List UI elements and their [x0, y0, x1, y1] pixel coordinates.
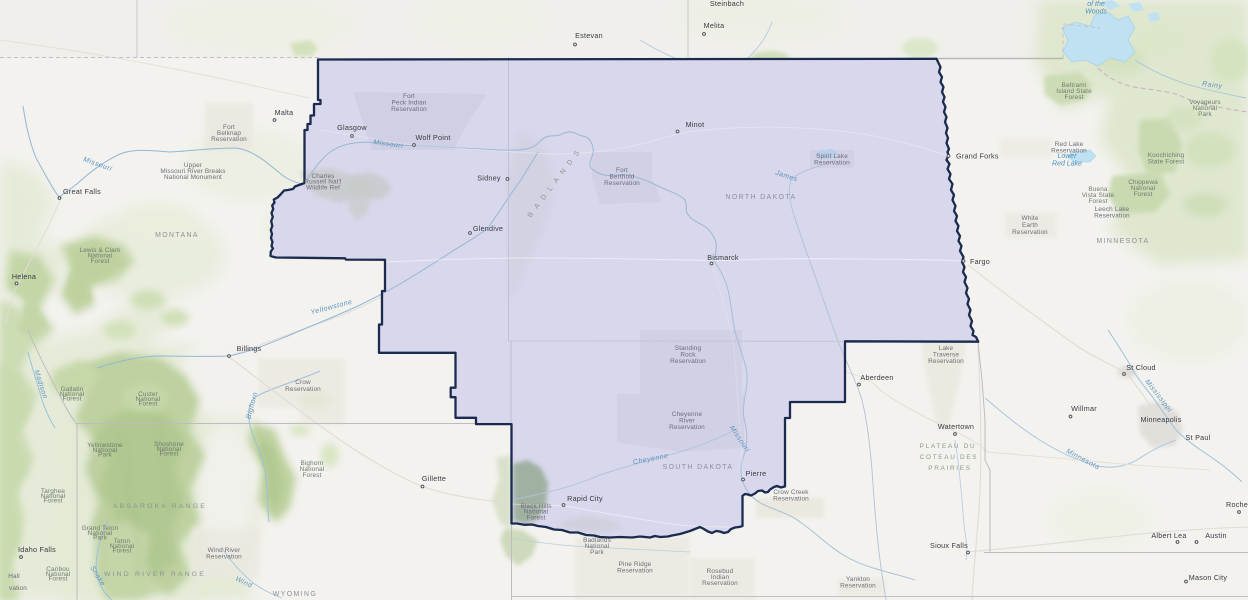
- svg-text:COTEAU DES: COTEAU DES: [920, 454, 979, 461]
- svg-text:Rapid City: Rapid City: [567, 494, 603, 503]
- svg-text:Willmar: Willmar: [1071, 404, 1097, 413]
- svg-text:Mason City: Mason City: [1189, 573, 1228, 582]
- svg-text:Sidney: Sidney: [477, 174, 501, 183]
- svg-text:ABSAROKA RANGE: ABSAROKA RANGE: [113, 503, 207, 510]
- svg-text:Idaho Falls: Idaho Falls: [18, 545, 56, 554]
- svg-text:Helena: Helena: [12, 272, 36, 281]
- svg-text:Fargo: Fargo: [970, 257, 990, 266]
- svg-text:Steinbach: Steinbach: [710, 0, 744, 8]
- svg-text:Malta: Malta: [275, 108, 294, 117]
- svg-text:Albert Lea: Albert Lea: [1151, 531, 1186, 540]
- svg-text:Rochester: Rochester: [1226, 500, 1248, 509]
- svg-text:TargheeNationalForest: TargheeNationalForest: [41, 488, 66, 505]
- svg-text:WIND RIVER RANGE: WIND RIVER RANGE: [104, 571, 206, 578]
- svg-text:Leech LakeReservation: Leech LakeReservation: [1094, 206, 1130, 220]
- svg-text:Great Falls: Great Falls: [63, 187, 101, 196]
- svg-text:CusterNationalForest: CusterNationalForest: [136, 391, 161, 408]
- svg-text:MONTANA: MONTANA: [155, 232, 199, 239]
- svg-text:MINNESOTA: MINNESOTA: [1096, 238, 1149, 245]
- svg-text:of theWoods: of theWoods: [1085, 1, 1107, 16]
- svg-text:GallatinNationalForest: GallatinNationalForest: [60, 386, 85, 403]
- svg-text:Minneapolis: Minneapolis: [1140, 415, 1181, 424]
- svg-text:PLATEAU DU: PLATEAU DU: [920, 443, 977, 450]
- svg-text:Bismarck: Bismarck: [707, 253, 739, 262]
- svg-text:Crow CreekReservation: Crow CreekReservation: [773, 489, 809, 503]
- svg-text:Gillette: Gillette: [422, 474, 446, 483]
- svg-text:Pine RidgeReservation: Pine RidgeReservation: [617, 561, 653, 575]
- svg-text:Watertown: Watertown: [938, 422, 974, 431]
- svg-text:KoochichingState Forest: KoochichingState Forest: [1148, 152, 1185, 166]
- svg-text:Spirit LakeReservation: Spirit LakeReservation: [814, 153, 850, 167]
- svg-text:CaribouNationalForest: CaribouNationalForest: [46, 566, 71, 583]
- svg-text:Billings: Billings: [237, 344, 262, 353]
- svg-text:Minot: Minot: [686, 120, 705, 129]
- svg-text:Estevan: Estevan: [575, 31, 603, 40]
- svg-text:Sioux Falls: Sioux Falls: [930, 541, 968, 550]
- svg-text:BighornNationalForest: BighornNationalForest: [300, 460, 325, 479]
- svg-text:Melita: Melita: [704, 21, 725, 30]
- svg-text:PRAIRIES: PRAIRIES: [928, 465, 971, 472]
- svg-text:NORTH DAKOTA: NORTH DAKOTA: [726, 194, 797, 201]
- svg-text:Glendive: Glendive: [473, 224, 503, 233]
- svg-text:WYOMING: WYOMING: [273, 591, 317, 598]
- svg-text:Wind RiverReservation: Wind RiverReservation: [206, 547, 242, 561]
- svg-text:Hall: Hall: [8, 573, 20, 580]
- svg-text:Pierre: Pierre: [746, 469, 767, 478]
- svg-text:SOUTH DAKOTA: SOUTH DAKOTA: [663, 464, 734, 471]
- svg-text:Wolf Point: Wolf Point: [415, 133, 450, 142]
- svg-text:Aberdeen: Aberdeen: [860, 373, 893, 382]
- svg-text:St Cloud: St Cloud: [1126, 363, 1156, 372]
- svg-text:vation: vation: [9, 585, 27, 592]
- svg-text:Grand Forks: Grand Forks: [956, 152, 999, 161]
- svg-text:Austin: Austin: [1205, 531, 1226, 540]
- svg-text:Glasgow: Glasgow: [337, 123, 367, 132]
- svg-text:St Paul: St Paul: [1186, 433, 1211, 442]
